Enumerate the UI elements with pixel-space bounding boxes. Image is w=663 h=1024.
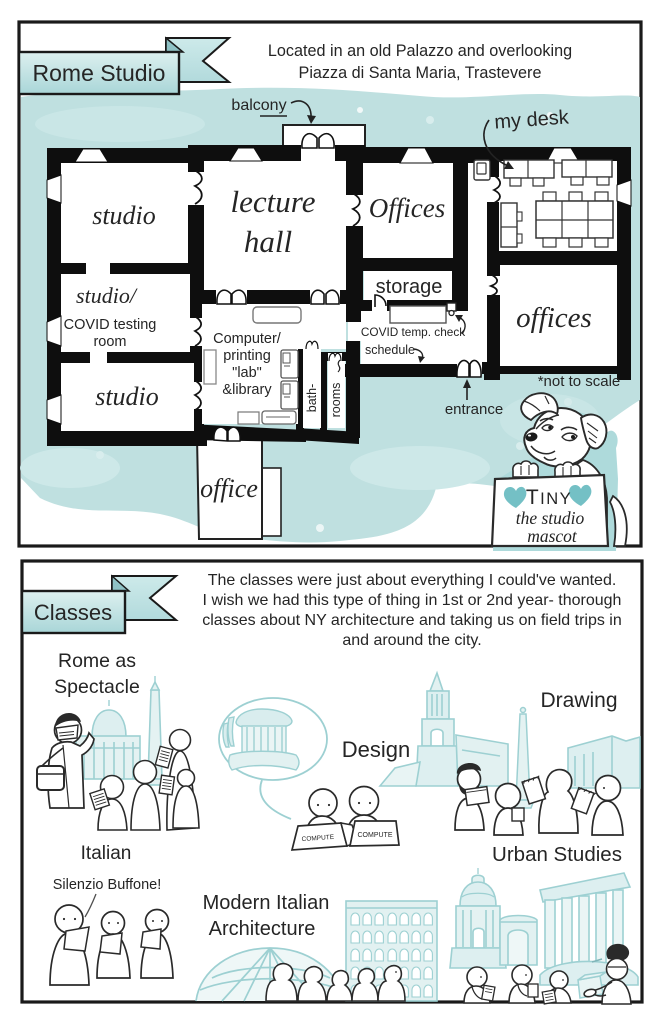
- svg-text:The classes were just about ev: The classes were just about everything I…: [208, 572, 617, 589]
- svg-text:Silenzio Buffone!: Silenzio Buffone!: [53, 877, 162, 893]
- svg-text:storage: storage: [376, 276, 443, 298]
- svg-text:Italian: Italian: [81, 843, 132, 864]
- svg-text:&library: &library: [222, 382, 272, 398]
- svg-text:studio: studio: [92, 201, 156, 230]
- svg-text:offices: offices: [516, 302, 592, 334]
- svg-text:hall: hall: [244, 224, 292, 259]
- svg-text:entrance: entrance: [445, 401, 503, 418]
- svg-text:studio: studio: [95, 382, 159, 411]
- svg-text:balcony: balcony: [231, 97, 286, 114]
- svg-text:rooms: rooms: [329, 383, 343, 418]
- svg-text:TINY: TINY: [526, 486, 572, 509]
- svg-text:the studio: the studio: [516, 508, 585, 528]
- svg-text:Computer/: Computer/: [213, 331, 282, 347]
- svg-text:Rome Studio: Rome Studio: [33, 60, 166, 86]
- svg-text:Piazza di Santa Maria, Trastev: Piazza di Santa Maria, Trastevere: [299, 64, 542, 82]
- svg-text:Design: Design: [342, 737, 410, 762]
- svg-text:and around the city.: and around the city.: [342, 632, 481, 649]
- svg-text:Classes: Classes: [34, 600, 112, 625]
- svg-text:I wish we had this type of thi: I wish we had this type of thing in 1st …: [203, 592, 622, 609]
- svg-text:classes about NY architecture: classes about NY architecture and taking…: [202, 612, 622, 629]
- svg-text:Offices: Offices: [369, 193, 445, 223]
- svg-text:printing: printing: [223, 348, 271, 364]
- svg-text:bath-: bath-: [305, 384, 319, 413]
- svg-text:studio/: studio/: [76, 283, 138, 308]
- svg-text:lecture: lecture: [231, 184, 316, 219]
- svg-text:room: room: [93, 334, 126, 350]
- svg-text:COMPUTE: COMPUTE: [358, 832, 393, 839]
- svg-text:Urban Studies: Urban Studies: [492, 843, 622, 866]
- svg-text:Drawing: Drawing: [540, 689, 617, 712]
- svg-text:Located in an old Palazzo and: Located in an old Palazzo and overlookin…: [268, 42, 572, 60]
- svg-text:"lab": "lab": [232, 365, 262, 381]
- svg-text:*not to scale: *not to scale: [538, 373, 621, 390]
- svg-text:COVID testing: COVID testing: [64, 317, 157, 333]
- svg-text:office: office: [200, 474, 258, 503]
- svg-text:COVID temp. check: COVID temp. check: [361, 325, 465, 339]
- svg-text:mascot: mascot: [527, 526, 578, 546]
- svg-text:schedule: schedule: [365, 343, 415, 357]
